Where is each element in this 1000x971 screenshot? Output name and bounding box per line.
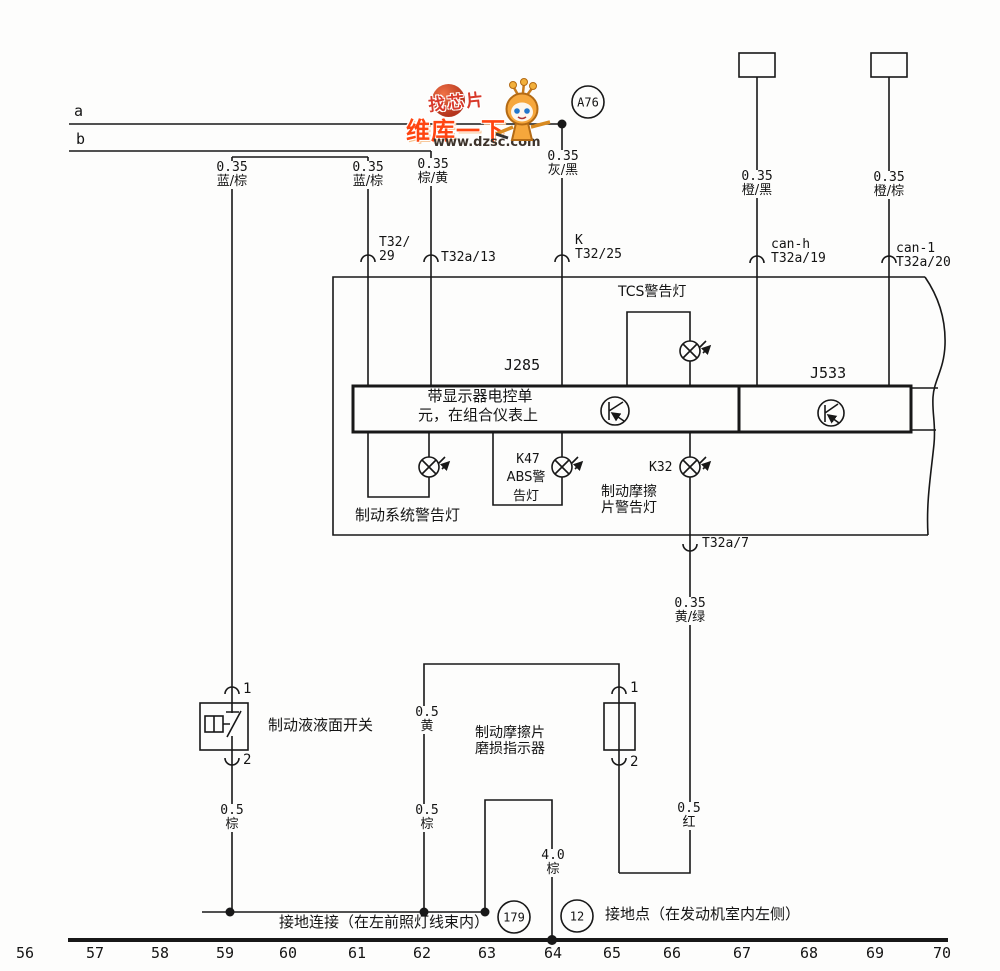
scale-69: 69 [866, 946, 884, 962]
ecu-label-line2: 元，在组合仪表上 [418, 408, 538, 424]
switch-contact [214, 711, 241, 737]
node-a76-label: A76 [577, 97, 599, 110]
ecu-driver-icon-j533 [818, 400, 844, 426]
scale-67: 67 [733, 946, 751, 962]
watermark-mascot-icon [492, 78, 556, 150]
wire-label-brown-left: 0.5棕 [218, 804, 245, 832]
bus-label-a: a [74, 104, 83, 120]
pin-t32a-7: T32a/7 [702, 537, 749, 551]
ground-12-number: 12 [570, 911, 584, 924]
wiring-diagram-page: a b A76 0.35蓝/棕 0.35蓝/棕 0.35棕/黄 0.35灰/黑 … [0, 0, 1000, 971]
pin-t32-25: KT32/25 [575, 234, 622, 261]
ecu-label-line1: 带显示器电控单 [427, 389, 532, 405]
pad-indicator-term1: 1 [630, 681, 638, 696]
scale-56: 56 [16, 946, 34, 962]
wire-label-brown-yellow: 0.35棕/黄 [415, 158, 450, 186]
wire-label-orange-black: 0.35橙/黑 [739, 170, 774, 198]
tcs-lamp-label: TCS警告灯 [618, 285, 686, 300]
bus-label-b: b [76, 132, 85, 148]
scale-65: 65 [603, 946, 621, 962]
scale-70: 70 [933, 946, 951, 962]
scale-62: 62 [413, 946, 431, 962]
cluster-torn-edge [925, 277, 945, 535]
ground-179-label: 接地连接（在左前照灯线束内） [279, 915, 489, 931]
pad-indicator-term2: 2 [630, 755, 638, 770]
pad-indicator-label-1: 制动摩擦片 [475, 726, 545, 741]
fluid-switch-term1: 1 [243, 682, 251, 697]
scale-64: 64 [544, 946, 562, 962]
designator-j533: J533 [810, 366, 846, 382]
ground-179-number: 179 [503, 912, 525, 925]
ecu-driver-icon-j285 [601, 397, 629, 425]
fluid-switch-label: 制动液液面开关 [268, 718, 373, 734]
scale-59: 59 [216, 946, 234, 962]
lamp-pad-icon [680, 457, 710, 477]
scale-60: 60 [279, 946, 297, 962]
wire-label-blue-brown-mid: 0.35蓝/棕 [350, 161, 385, 189]
brake-system-lamp-label: 制动系统警告灯 [355, 508, 460, 524]
wire-label-yellow: 0.5黄 [413, 706, 440, 734]
ground-12-label: 接地点（在发动机室内左侧） [605, 907, 800, 923]
fluid-switch-box [200, 703, 248, 750]
abs-lamp-designator: K47 [514, 453, 541, 467]
pad-lamp-label-2: 片警告灯 [601, 501, 657, 516]
scale-58: 58 [151, 946, 169, 962]
abs-lamp-label-1: ABS警 [505, 471, 548, 485]
scale-61: 61 [348, 946, 366, 962]
scale-68: 68 [800, 946, 818, 962]
terminal-box-can-h [739, 53, 775, 77]
pin-t32a-13: T32a/13 [441, 251, 496, 265]
wire-label-orange-brown: 0.35橙/棕 [871, 171, 906, 199]
pin-t32a-20: can-1T32a/20 [896, 242, 951, 269]
abs-lamp-label-2: 告灯 [511, 490, 541, 504]
fluid-switch-term2: 2 [243, 753, 251, 768]
lamp-brake-system-icon [419, 457, 449, 477]
pad-lamp-designator: K32 [649, 461, 672, 475]
scale-57: 57 [86, 946, 104, 962]
pad-indicator-label-2: 磨损指示器 [475, 742, 545, 757]
designator-j285: J285 [504, 358, 540, 374]
wire-label-grey-black: 0.35灰/黑 [545, 150, 580, 178]
wire-label-blue-brown-left: 0.35蓝/棕 [214, 161, 249, 189]
lamp-tcs-icon [680, 341, 710, 361]
pad-lamp-label-1: 制动摩擦 [601, 485, 657, 500]
wire-label-brown-mid: 0.5棕 [413, 804, 440, 832]
wire-label-brown-4-0: 4.0棕 [539, 849, 566, 877]
scale-63: 63 [478, 946, 496, 962]
terminal-box-can-l [871, 53, 907, 77]
wire-label-yellow-green: 0.35黄/绿 [672, 597, 707, 625]
pin-t32-29: T32/29 [379, 236, 410, 263]
wire-label-red: 0.5红 [675, 802, 702, 830]
pin-t32a-19: can-hT32a/19 [771, 238, 826, 265]
scale-66: 66 [663, 946, 681, 962]
lamp-abs-icon [552, 457, 582, 477]
connector-arcs [225, 255, 896, 765]
